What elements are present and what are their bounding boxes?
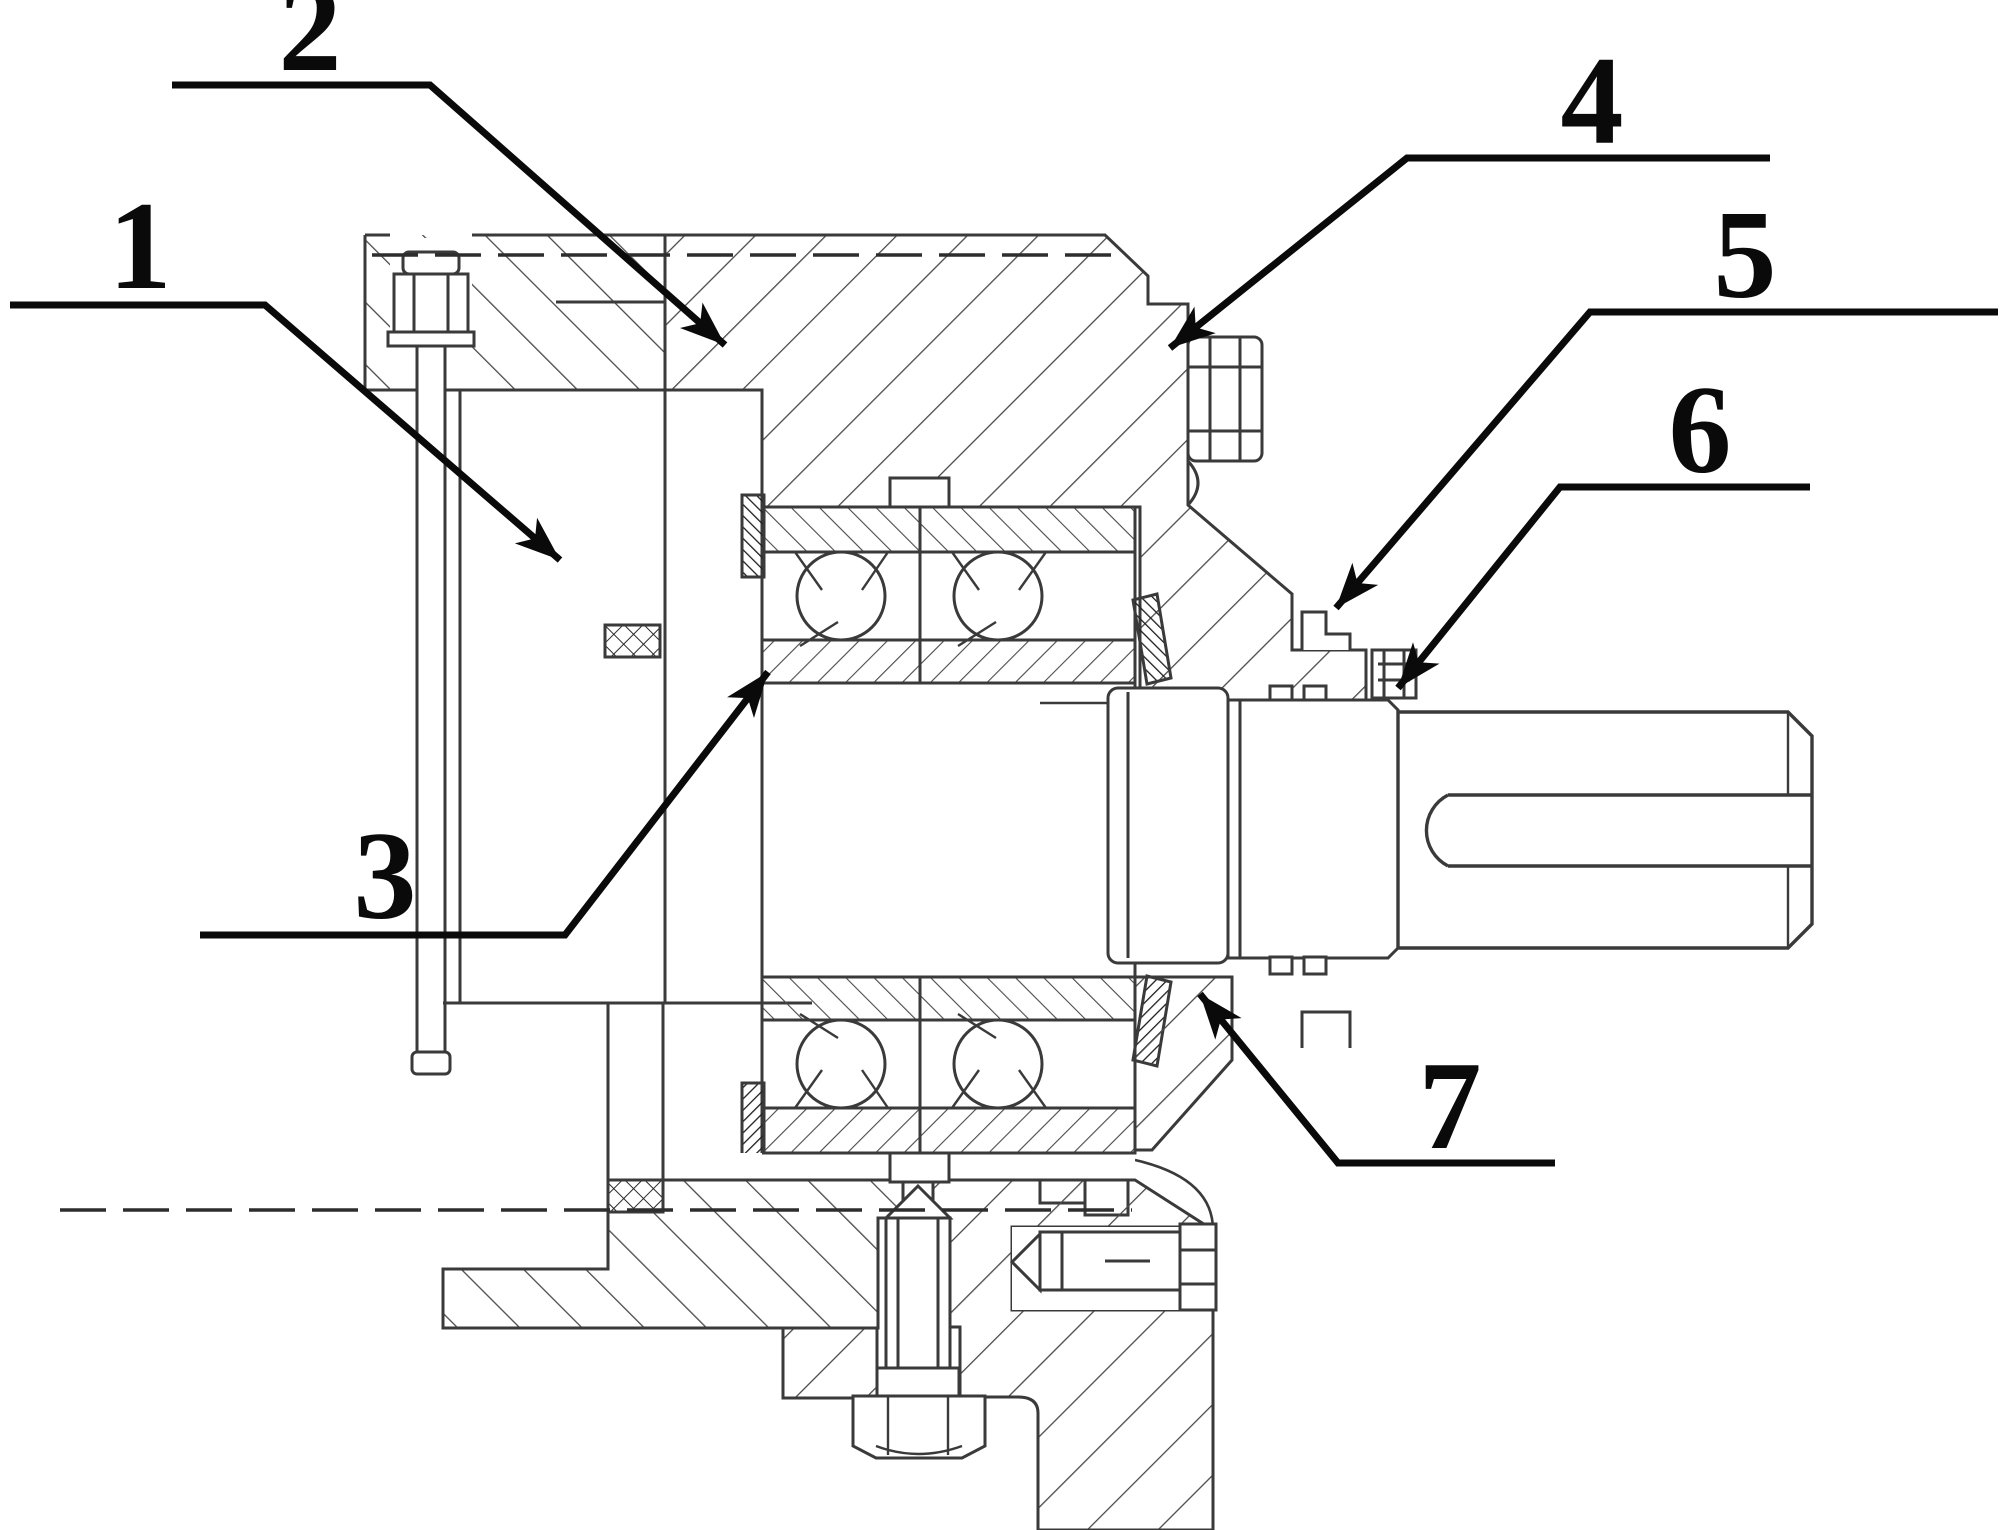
output-shaft — [1398, 712, 1812, 948]
callout-leader-4 — [1170, 158, 1770, 348]
bearing-lower-row — [742, 976, 1171, 1165]
callout-label-4: 4 — [1561, 32, 1624, 171]
callout-leader-3 — [200, 672, 768, 935]
spacer-block — [783, 1328, 877, 1398]
shaft-sleeve — [1228, 700, 1398, 958]
hub-flange-lower — [1135, 977, 1232, 1150]
bearing-upper-row — [742, 495, 1171, 684]
callout-leader-5 — [1336, 312, 1998, 608]
callout-label-7: 7 — [1419, 1037, 1482, 1176]
section-drawing — [60, 235, 1812, 1530]
patent-figure-canvas: 1 2 3 4 5 6 7 — [0, 0, 2002, 1530]
callout-label-3: 3 — [354, 807, 417, 946]
seal-groove — [1302, 612, 1350, 650]
hub-cylinder-edges — [762, 683, 1135, 977]
callout-5: 5 — [1336, 186, 1998, 608]
callout-4: 4 — [1170, 32, 1770, 348]
assembly-drawing: 1 2 3 4 5 6 7 — [0, 0, 2002, 1530]
bearing-retainer-tab-lower — [890, 1153, 949, 1182]
hub-carrier-housing — [665, 235, 1416, 705]
callout-7: 7 — [1200, 994, 1555, 1176]
knuckle-lower-mass — [443, 1180, 903, 1398]
callout-leader-7 — [1200, 994, 1555, 1163]
callout-label-5: 5 — [1714, 186, 1777, 325]
callout-leader-6 — [1398, 487, 1810, 688]
gasket-seal-upper — [605, 625, 660, 657]
callout-label-6: 6 — [1669, 361, 1732, 500]
bearing-ball — [797, 552, 885, 640]
callout-3: 3 — [200, 672, 768, 946]
bearing-ball — [954, 552, 1042, 640]
bearing-seal-left — [742, 495, 764, 577]
callout-label-2: 2 — [279, 0, 342, 98]
flange-hex-bolt — [1188, 337, 1262, 505]
seal-groove-lower — [1302, 1012, 1350, 1048]
lock-washer-tab — [1304, 957, 1326, 974]
bearing-retainer-tab — [890, 478, 949, 507]
gasket-seal-lower — [608, 1180, 663, 1212]
callout-6: 6 — [1398, 361, 1810, 688]
hub-spacer — [1108, 688, 1228, 963]
callout-label-1: 1 — [109, 177, 172, 316]
horizontal-bolt — [1012, 1224, 1216, 1310]
lock-washer-tab — [1270, 957, 1292, 974]
